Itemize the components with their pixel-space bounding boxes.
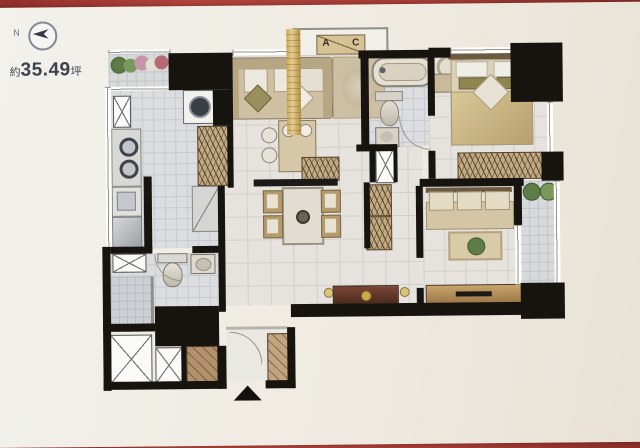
sideboard-cabinet bbox=[301, 157, 339, 181]
wall bbox=[360, 51, 369, 146]
stove bbox=[111, 129, 142, 187]
pillow bbox=[485, 191, 510, 210]
dining-chair bbox=[263, 215, 283, 238]
wall bbox=[427, 51, 435, 116]
wall bbox=[358, 50, 428, 59]
wall bbox=[287, 327, 296, 388]
kitchen-counter-cabinet bbox=[192, 186, 220, 232]
pipe-shaft bbox=[155, 347, 182, 383]
entry-arrow-icon bbox=[234, 385, 262, 400]
wall bbox=[428, 48, 450, 58]
balcony-door bbox=[515, 225, 522, 285]
north-compass bbox=[28, 21, 57, 50]
wardrobe bbox=[457, 152, 543, 180]
wall bbox=[356, 144, 396, 151]
tv-cabinet bbox=[254, 179, 338, 187]
pillow bbox=[429, 192, 454, 211]
console-table bbox=[333, 285, 399, 305]
balcony-door bbox=[109, 86, 171, 91]
area-prefix: 約 bbox=[10, 67, 21, 79]
sofa bbox=[228, 57, 333, 120]
rug bbox=[448, 231, 502, 261]
wall bbox=[428, 151, 435, 179]
area-value: 35.49 bbox=[20, 59, 70, 80]
wall bbox=[213, 90, 233, 126]
wall bbox=[102, 247, 111, 391]
bar-stool bbox=[261, 147, 277, 163]
paper-sheet: N 約35.49坪 A C bbox=[0, 2, 640, 448]
balcony-rail bbox=[108, 49, 170, 54]
dining-chair bbox=[321, 190, 341, 213]
column bbox=[510, 43, 563, 102]
wall bbox=[103, 323, 155, 331]
plant bbox=[523, 183, 541, 201]
area-unit: 坪 bbox=[71, 66, 82, 78]
wall bbox=[514, 181, 522, 225]
north-arrow-icon bbox=[30, 23, 51, 44]
single-bed bbox=[426, 187, 512, 228]
gold-runner-graphic bbox=[286, 29, 301, 135]
wall bbox=[155, 306, 219, 347]
bathtub bbox=[371, 57, 433, 88]
entry-tile-panel bbox=[186, 346, 219, 383]
dining-chair bbox=[321, 215, 341, 238]
wall bbox=[393, 144, 397, 182]
pipe-shaft bbox=[112, 254, 146, 273]
shower-area bbox=[111, 276, 151, 328]
wall bbox=[168, 53, 232, 91]
pillow bbox=[457, 191, 482, 210]
wall bbox=[417, 288, 424, 306]
pipe-shaft bbox=[110, 334, 152, 383]
balcony-rail bbox=[554, 181, 561, 287]
wall bbox=[192, 246, 220, 253]
window bbox=[232, 49, 294, 56]
dining-chair bbox=[263, 190, 283, 213]
wall bbox=[420, 178, 524, 187]
wall bbox=[364, 182, 371, 248]
wall bbox=[110, 246, 152, 253]
pillow bbox=[456, 61, 488, 77]
wash-basin bbox=[190, 254, 215, 274]
entry-threshold bbox=[226, 326, 287, 330]
wall-sconce bbox=[400, 287, 410, 297]
shower-glass bbox=[151, 276, 154, 328]
flower-plant bbox=[154, 55, 168, 69]
wall bbox=[541, 152, 563, 181]
toilet bbox=[380, 100, 399, 126]
wall bbox=[218, 186, 226, 312]
wall bbox=[144, 176, 153, 250]
kitchen-window-box bbox=[113, 96, 131, 128]
wall bbox=[227, 126, 234, 188]
wall bbox=[104, 381, 227, 390]
photo-of-floor-plan-page: { "page": { "kind": "apartment floor pla… bbox=[0, 0, 640, 424]
dining-table bbox=[282, 187, 325, 245]
window bbox=[450, 47, 512, 54]
wall bbox=[181, 345, 186, 382]
window bbox=[547, 102, 553, 154]
refrigerator bbox=[112, 217, 142, 249]
column bbox=[521, 282, 565, 318]
wall bbox=[291, 302, 528, 317]
compass-n-label: N bbox=[13, 28, 20, 38]
floor-plan: N 約35.49坪 A C bbox=[0, 0, 640, 424]
ac-label-a: A bbox=[322, 38, 329, 49]
wall bbox=[416, 186, 424, 258]
washing-machine bbox=[183, 90, 214, 124]
wall bbox=[369, 144, 375, 182]
area-label: 約35.49坪 bbox=[9, 59, 81, 82]
kitchen-sink bbox=[112, 187, 142, 217]
ac-label-c: C bbox=[352, 37, 359, 48]
potted-plant bbox=[467, 237, 485, 255]
bar-stool bbox=[261, 127, 277, 143]
